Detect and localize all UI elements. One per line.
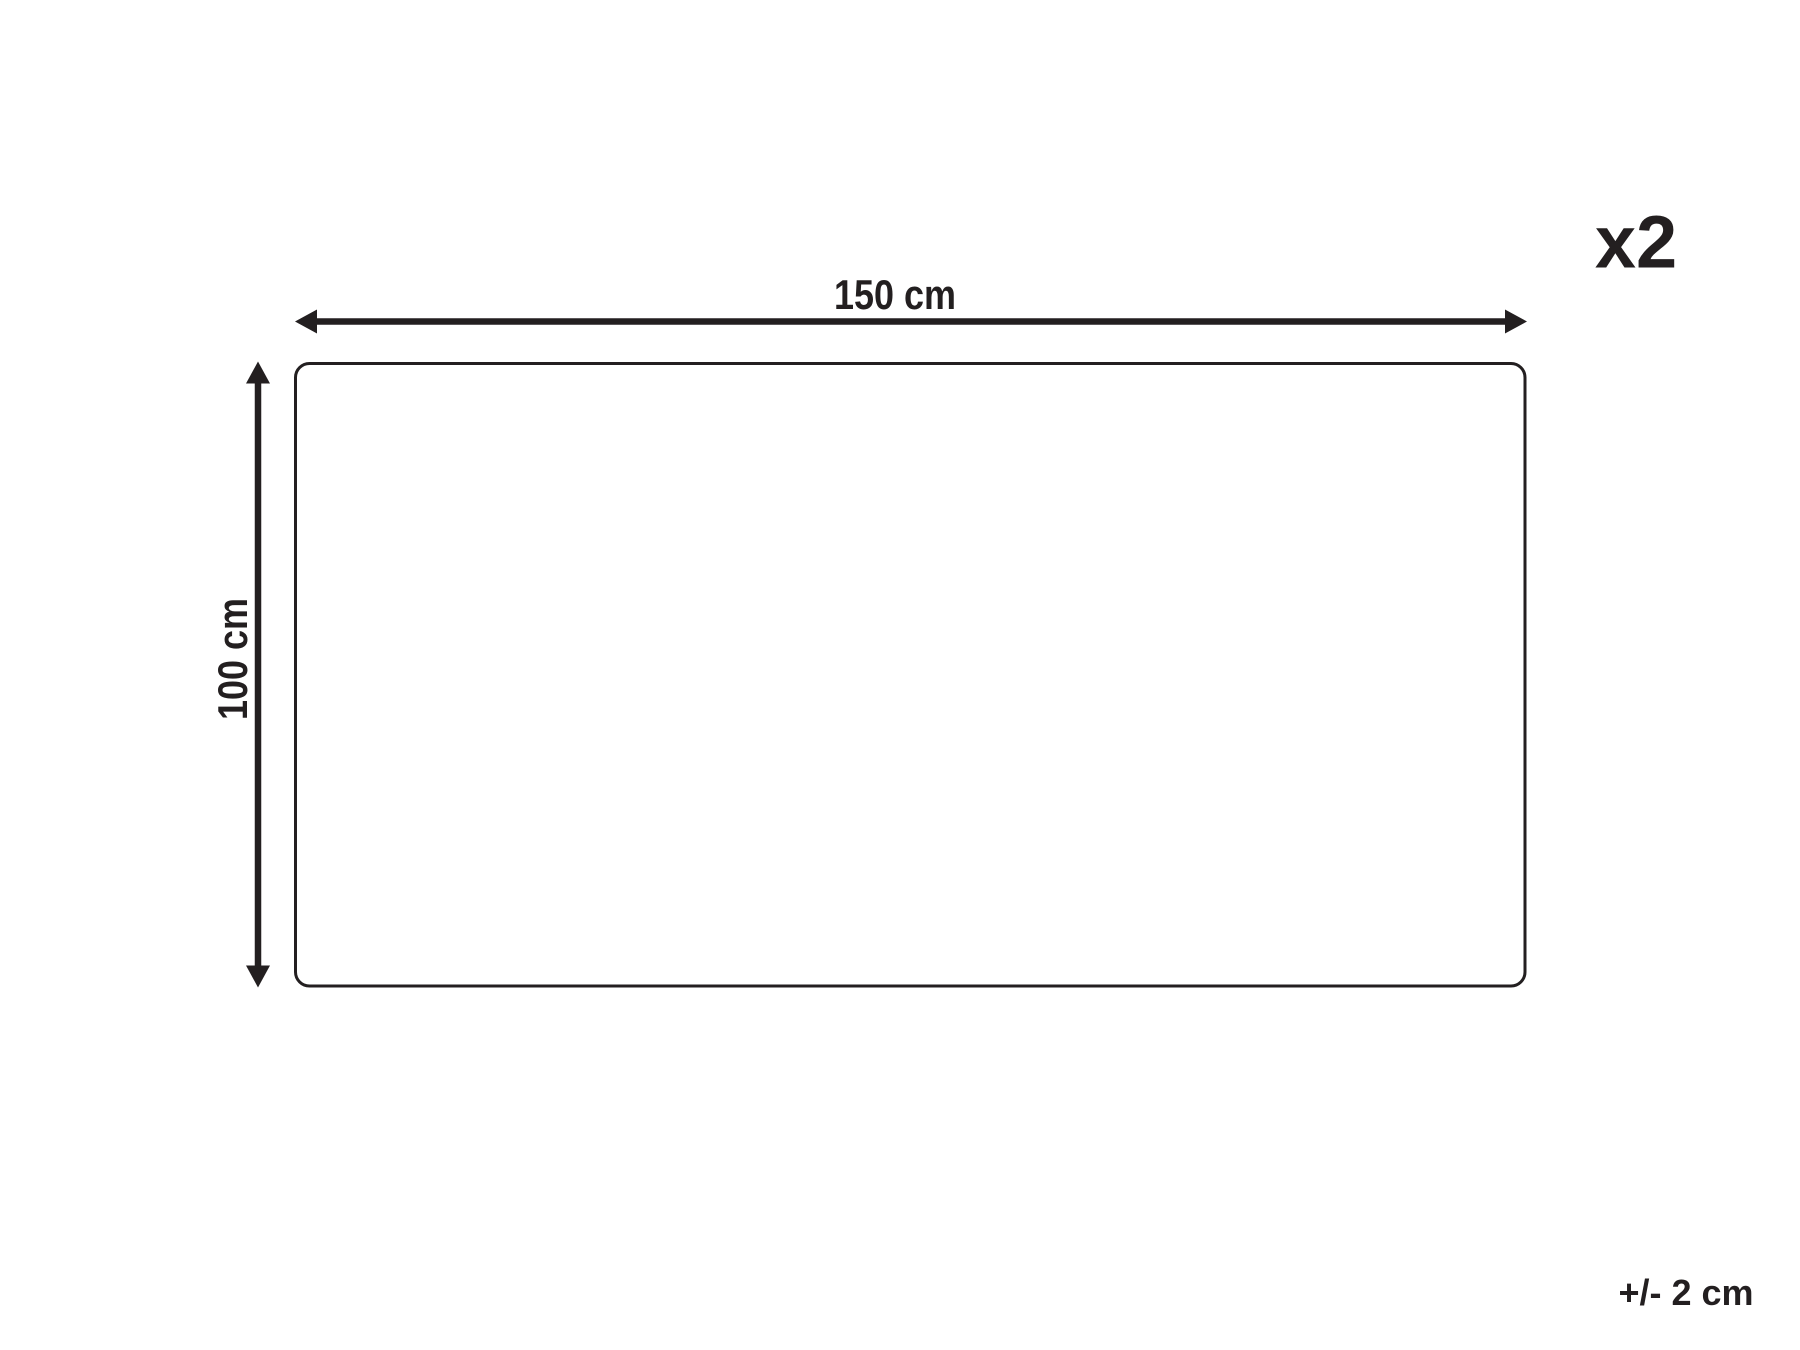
svg-text:150 cm: 150 cm bbox=[834, 271, 956, 318]
svg-text:x2: x2 bbox=[1595, 201, 1677, 284]
svg-text:+/- 2 cm: +/- 2 cm bbox=[1618, 1272, 1753, 1313]
svg-text:100 cm: 100 cm bbox=[209, 598, 256, 720]
